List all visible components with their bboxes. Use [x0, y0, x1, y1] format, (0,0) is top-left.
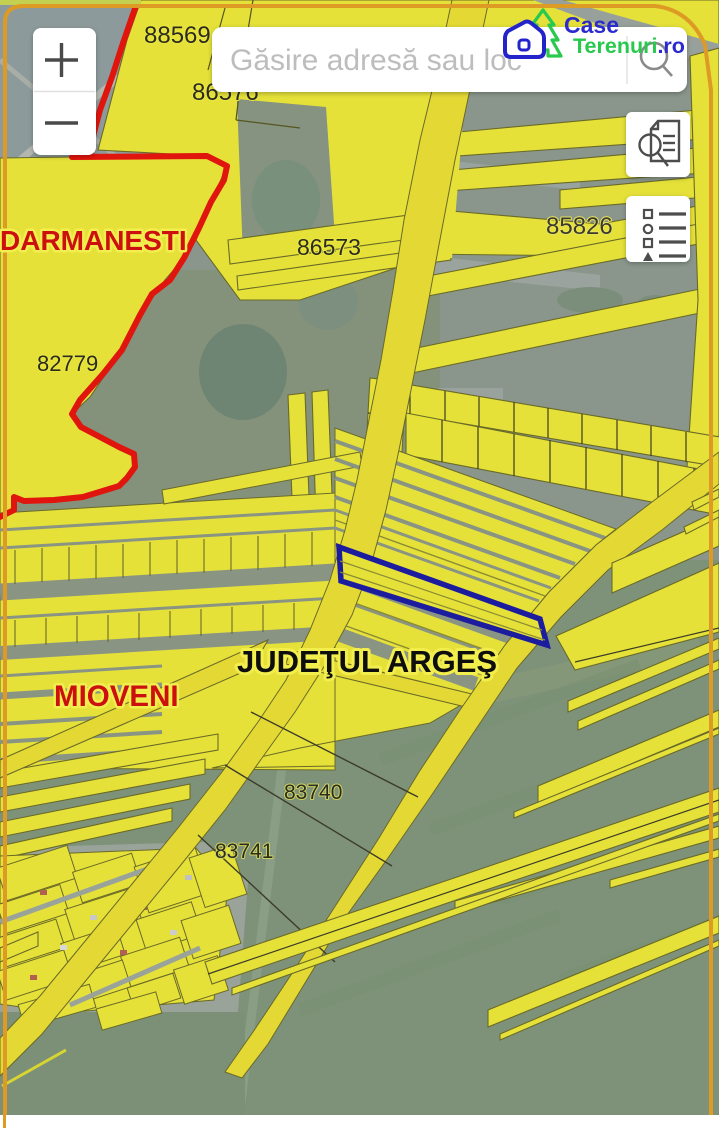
svg-text:Terenuri.ro: Terenuri.ro	[573, 34, 685, 58]
svg-text:88569: 88569	[144, 22, 211, 49]
svg-text:Găsire adresă sau loc: Găsire adresă sau loc	[230, 44, 522, 77]
svg-text:MIOVENI: MIOVENI	[54, 680, 179, 713]
svg-text:DARMANESTI: DARMANESTI	[0, 225, 187, 256]
svg-text:82779: 82779	[37, 351, 98, 376]
svg-text:83740: 83740	[284, 781, 342, 804]
svg-text:86573: 86573	[297, 234, 361, 260]
svg-text:JUDEŢUL ARGEŞ: JUDEŢUL ARGEŞ	[237, 644, 497, 679]
svg-text:85826: 85826	[546, 213, 613, 240]
svg-text:83741: 83741	[215, 840, 273, 863]
